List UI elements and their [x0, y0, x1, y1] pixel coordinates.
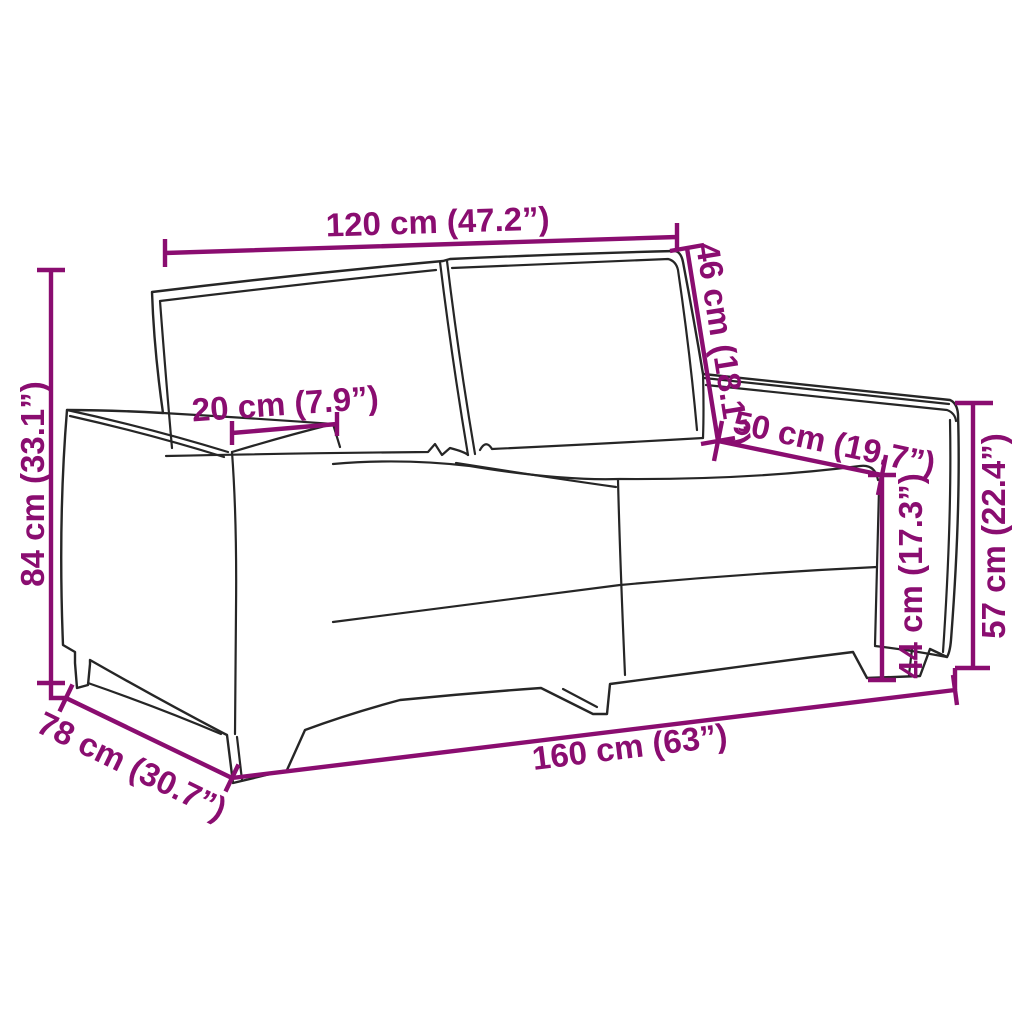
- sofa-illustration: [61, 251, 958, 783]
- armrest-height-label: 57 cm (22.4”): [975, 433, 1012, 638]
- total-height-label: 84 cm (33.1”): [14, 381, 51, 586]
- back-cushion-right-edge: [703, 374, 704, 438]
- diagram-canvas: 120 cm (47.2”) 46 cm (18.1”) 20 cm (7.9”…: [0, 0, 1024, 1024]
- dimension-total-height: 84 cm (33.1”): [14, 270, 66, 698]
- sofa-silhouette: [61, 251, 958, 783]
- sofa-dimension-diagram: 120 cm (47.2”) 46 cm (18.1”) 20 cm (7.9”…: [0, 0, 1024, 1024]
- seat-width-label: 120 cm (47.2”): [325, 199, 550, 243]
- seat-height-label: 44 cm (17.3”): [892, 473, 929, 678]
- dimension-armrest-height: 57 cm (22.4”): [955, 403, 1012, 690]
- total-width-label: 160 cm (63”): [530, 716, 729, 777]
